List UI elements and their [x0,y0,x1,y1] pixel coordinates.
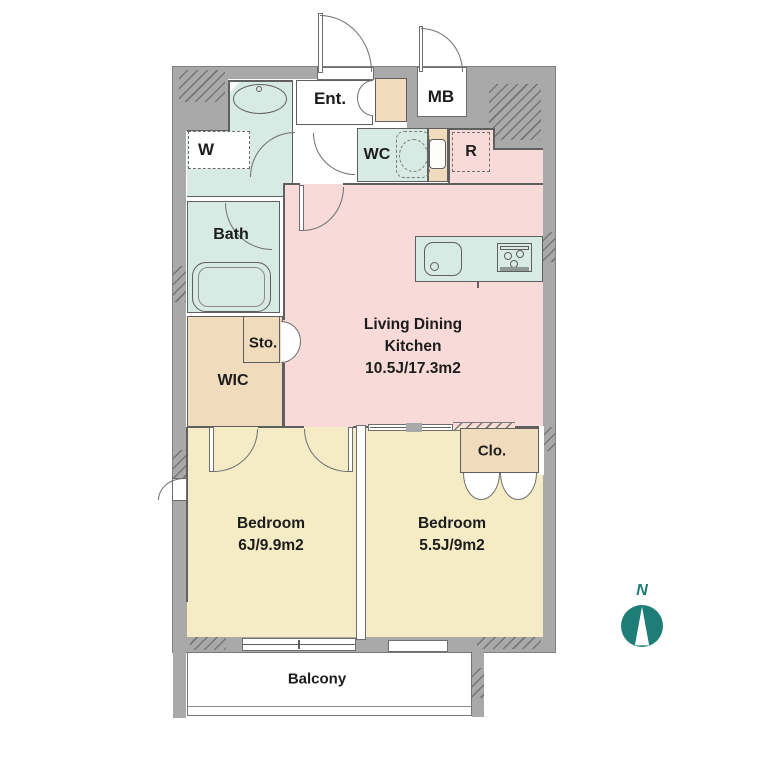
bedroom1-label: Bedroom 6J/9.9m2 [237,513,305,557]
wall-line [228,80,230,131]
wall-block-ent-mb [407,79,417,128]
mb-door-arc [421,28,463,72]
bedroom2-label-line2: 5.5J/9m2 [418,535,486,557]
wall-line [448,128,450,184]
wall-line [493,148,543,150]
window-tick [298,640,300,649]
wall-line [448,128,493,130]
ldk-label-line3: 10.5J/17.3m2 [364,358,462,380]
wall-line [283,183,300,185]
wall-hatch-left-lower [173,450,186,478]
sliding-door-pocket [406,423,422,432]
kitchen-sink [424,242,462,276]
wall-line [343,183,543,185]
floor-plan: W Ent. MB WC R Bath Sto. WIC Clo. Balcon… [0,0,768,768]
wall-hatch-top-left [179,70,225,102]
wall-hatch-top-right [489,84,541,140]
wall-line [493,128,495,149]
wall-block-under-mb [417,117,467,128]
entrance-label: Ent. [314,89,346,109]
balcony-railing-line [188,706,471,707]
counter-support-tick [477,282,479,288]
stove-burner [504,252,512,260]
kitchen-sink-drain [430,262,439,271]
stove-front-bar [500,267,529,272]
toilet-tank [429,139,446,169]
wic-label: WIC [217,372,248,390]
wall-line [283,183,285,320]
bedroom1-label-line2: 6J/9.9m2 [237,535,305,557]
wall-line [283,363,285,427]
bedroom-divider-wall [356,425,366,640]
washbasin-faucet [256,86,262,92]
ldk-label-line2: Kitchen [364,336,462,358]
wall-line [258,426,304,428]
bedroom1-label-line1: Bedroom [237,513,305,535]
bath-label: Bath [213,226,249,244]
wall-hatch-right-clo [543,427,555,451]
closet-label: Clo. [478,443,506,460]
balcony-label: Balcony [288,671,346,688]
bedroom1-door-leaf-b [348,427,353,472]
closet-side-gap [539,426,544,475]
stove-grill [500,246,529,250]
bedroom2-label-line1: Bedroom [418,513,486,535]
shoe-cabinet [375,78,407,122]
wall-balcony-left [173,651,186,718]
ldk-label: Living Dining Kitchen 10.5J/17.3m2 [364,314,462,380]
bathtub-inner [198,267,265,307]
north-compass-icon [621,605,663,647]
balcony-door-opening [388,640,448,652]
toilet-bowl [399,139,428,172]
bedroom2-label: Bedroom 5.5J/9m2 [418,513,486,557]
wc-label: WC [364,146,391,164]
compass-needle [621,605,663,647]
compass-north-label: N [636,582,648,600]
wall-hatch-right-kitchen [543,232,555,262]
ldk-label-line1: Living Dining [364,314,462,336]
wall-line [228,80,293,82]
washer-label: W [198,140,214,160]
meter-box-label: MB [428,87,454,107]
room-ldk-upper-right [493,149,543,184]
storage-label: Sto. [249,335,277,352]
wall-hatch-left-mid [173,266,186,302]
wall-line [187,196,293,198]
side-door-arc [158,478,184,500]
fridge-label: R [465,143,477,161]
wall-line [186,427,188,602]
stove-burner [516,250,524,258]
wall-hatch-balcony-right [472,668,484,698]
entrance-door-arc [320,15,372,72]
